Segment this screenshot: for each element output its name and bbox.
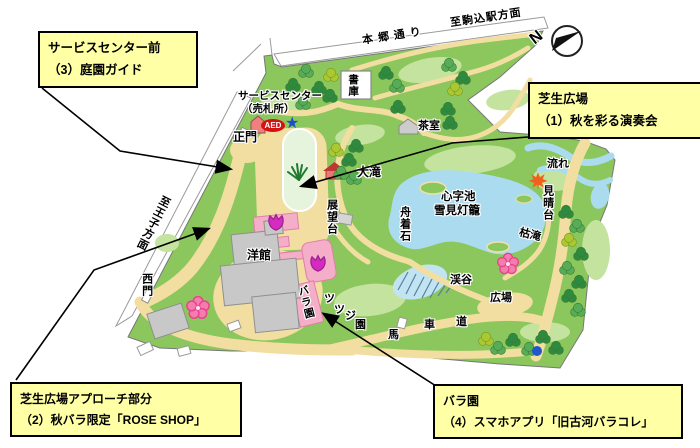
callout-service-center-line1: サービスセンター前	[48, 38, 188, 60]
callout-service-center: サービスセンター前 （3）庭園ガイド	[38, 31, 198, 88]
callout-approach-line2: （2）秋バラ限定「ROSE SHOP」	[20, 410, 232, 431]
callout-service-center-line2: （3）庭園ガイド	[48, 60, 188, 82]
callout-approach: 芝生広場アプローチ部分 （2）秋バラ限定「ROSE SHOP」	[10, 382, 242, 437]
callout-lawn-line2: （1）秋を彩る演奏会	[538, 111, 692, 133]
callout-rose-line2: （4）スマホアプリ「旧古河バラコレ」	[443, 412, 673, 433]
callout-approach-line1: 芝生広場アプローチ部分	[20, 389, 232, 410]
callout-lawn: 芝生広場 （1）秋を彩る演奏会	[528, 82, 700, 139]
callout-rose-line1: バラ園	[443, 391, 673, 412]
callout-lawn-line1: 芝生広場	[538, 89, 692, 111]
callout-rose: バラ園 （4）スマホアプリ「旧古河バラコレ」	[433, 384, 683, 439]
garden-map-page: 本郷通り 至駒込駅方面 至王子方面 サービスセンター （売札所） 正門 書庫 茶…	[0, 0, 700, 448]
